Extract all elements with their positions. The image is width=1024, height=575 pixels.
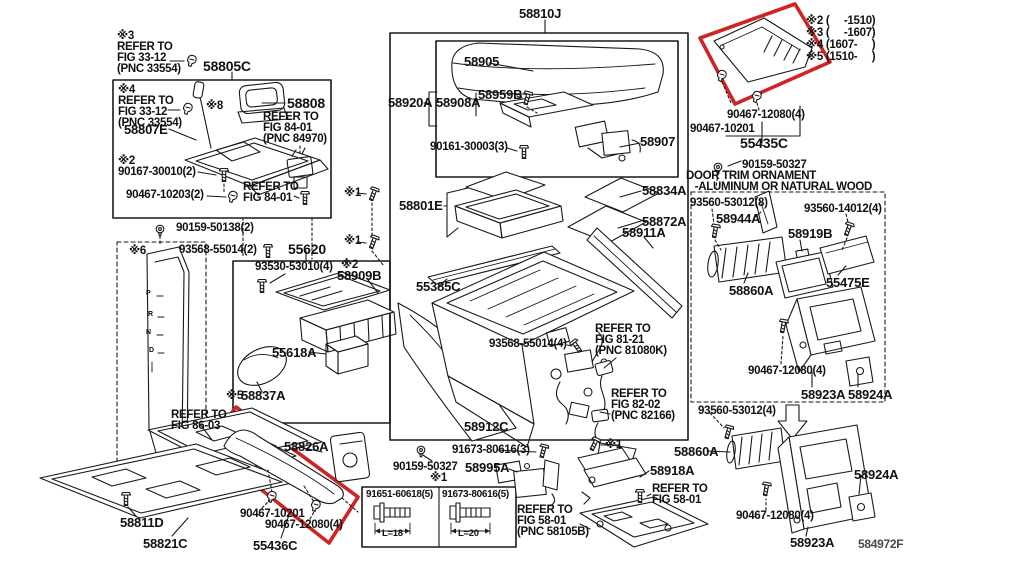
figure-code: 584972F — [858, 539, 903, 550]
part-label-r: R — [148, 312, 153, 319]
part-label-58905: 58905 — [464, 56, 499, 68]
part-label-5-1510: ※5 (1510- ) — [806, 52, 875, 63]
part-label-3-1607: ※3 ( -1607) — [806, 28, 875, 39]
part-label-58834a: 58834A — [642, 185, 686, 197]
part-label-refer-to: REFER TO FIG 86-03 — [171, 410, 227, 432]
drawing-hinge-58907 — [575, 121, 640, 161]
part-label-93560-53012-8: 93560-53012(8) — [690, 198, 768, 209]
part-label-55618a: 55618A — [272, 347, 316, 359]
drawing-55620-parts — [231, 272, 396, 393]
part-label-58805c: 58805C — [203, 60, 251, 73]
part-label-58944a: 58944A — [716, 213, 760, 225]
part-label-2: ※2 90167-30010(2) — [118, 156, 196, 178]
part-label-58811d: 58811D — [120, 517, 164, 529]
part-label-58907: 58907 — [640, 136, 675, 148]
part-label-refer-to: REFER TO FIG 84-01 — [243, 182, 299, 204]
part-label-55435c: 55435C — [740, 137, 788, 150]
part-label-refer-to: REFER TO FIG 58-01 — [652, 484, 708, 506]
part-label-90159-50327: 90159-50327 — [393, 462, 458, 473]
part-label-58923a: 58923A — [801, 389, 845, 401]
drawing-strip-55475e — [820, 236, 874, 274]
part-label-8: ※8 — [206, 101, 223, 112]
part-label-2-1510: ※2 ( -1510) — [806, 16, 875, 27]
bolt-table-header-2: 91673-80616(5) — [442, 490, 509, 500]
part-label-93560-53012-4: 93560-53012(4) — [698, 406, 776, 417]
bolt-length-label-1: L=18 — [382, 529, 403, 538]
part-label-58923a: 58923A — [790, 537, 834, 549]
part-label-refer-to: REFER TO FIG 82-02 (PNC 82166) — [611, 389, 675, 422]
part-label-90467-12080-4: 90467-12080(4) — [265, 520, 343, 531]
part-label-90467-12080-4: 90467-12080(4) — [736, 511, 814, 522]
part-label-58837a: 58837A — [241, 390, 285, 402]
bolt-table-note: ※1 — [430, 473, 447, 484]
part-label-90159-50138-2: 90159-50138(2) — [176, 223, 254, 234]
part-label-p: P — [146, 291, 150, 298]
part-label-90467-12080-4: 90467-12080(4) — [727, 110, 805, 121]
part-label-58908a: 58908A — [436, 97, 480, 109]
down-arrow-icon — [778, 405, 807, 439]
part-label-58924a: 58924A — [848, 389, 892, 401]
part-label-55475e: 55475E — [826, 277, 870, 289]
part-label-90467-10201: 90467-10201 — [690, 124, 755, 135]
part-label-n: N — [146, 330, 151, 337]
part-label-refer-to: REFER TO FIG 58-01 (PNC 58105B) — [517, 505, 589, 538]
part-label-58810j: 58810J — [519, 8, 561, 20]
part-label-58808: 58808 — [287, 97, 325, 110]
part-label-58995a: 58995A — [465, 462, 509, 474]
parts-diagram-page: ※3 REFER TO FIG 33-12 (PNC 33554)58805C※… — [0, 0, 1024, 575]
part-label-58826a: 58826A — [284, 441, 328, 453]
part-label-58860a: 58860A — [674, 446, 718, 458]
drawing-clip-plate-58924a-upper — [846, 357, 873, 386]
drawing-clip-plate-58924a-lower — [849, 493, 875, 521]
part-label-58909b: 58909B — [337, 270, 381, 282]
drawing-panel-58826a — [330, 432, 370, 482]
part-label-4-1607: ※4 (1607- ) — [806, 40, 875, 51]
part-label-90161-30003-3: 90161-30003(3) — [430, 142, 508, 153]
part-label-58912c: 58912C — [464, 421, 508, 433]
part-label-58924a: 58924A — [854, 469, 898, 481]
part-label-d: D — [149, 348, 154, 355]
part-label-93568-55014-2: 93568-55014(2) — [179, 245, 257, 256]
part-label-93568-55014-4: 93568-55014(4) — [489, 339, 567, 350]
part-label-door-trim-ornament: DOOR TRIM ORNAMENT -ALUMINUM OR NATURAL … — [686, 171, 872, 193]
part-label-93560-14012-4: 93560-14012(4) — [804, 204, 882, 215]
part-label-90467-12080-4: 90467-12080(4) — [748, 366, 826, 377]
part-label-refer-to: REFER TO FIG 84-01 (PNC 84970) — [263, 112, 327, 145]
drawing-bracket-58918a — [578, 443, 646, 504]
part-label-58911a: 58911A — [622, 227, 666, 239]
part-label-58860a: 58860A — [729, 285, 773, 297]
drawing-vent-58860a-lower — [726, 428, 785, 469]
part-label-6: ※6 — [129, 246, 146, 257]
part-label-90467-10203-2: 90467-10203(2) — [126, 190, 204, 201]
part-label-58920a: 58920A — [388, 97, 432, 109]
part-label-1: ※1 — [344, 236, 361, 247]
part-label-58918a: 58918A — [650, 465, 694, 477]
part-label-93530-53010-4: 93530-53010(4) — [255, 262, 333, 273]
bolt-length-label-2: L=20 — [458, 529, 479, 538]
part-label-55436c: 55436C — [253, 540, 297, 552]
part-label-58919b: 58919B — [788, 228, 832, 240]
part-label-58807e: 58807E — [124, 124, 168, 136]
bolt-table-header-1: 91651-60618(5) — [366, 490, 433, 500]
part-label-3: ※3 REFER TO FIG 33-12 (PNC 33554) — [117, 31, 181, 75]
part-label-55620: 55620 — [288, 243, 326, 256]
part-label-1: ※1 — [344, 188, 361, 199]
part-label-91673-80616-3: 91673-80616(3) — [452, 445, 530, 456]
part-label-55385c: 55385C — [416, 281, 460, 293]
part-label-58959b: 58959B — [478, 89, 522, 101]
part-label-58821c: 58821C — [143, 538, 187, 550]
part-label-58801e: 58801E — [399, 200, 443, 212]
part-label-refer-to: REFER TO FIG 81-21 (PNC 81080K) — [595, 324, 667, 357]
part-label-1: ※1 — [605, 440, 622, 451]
